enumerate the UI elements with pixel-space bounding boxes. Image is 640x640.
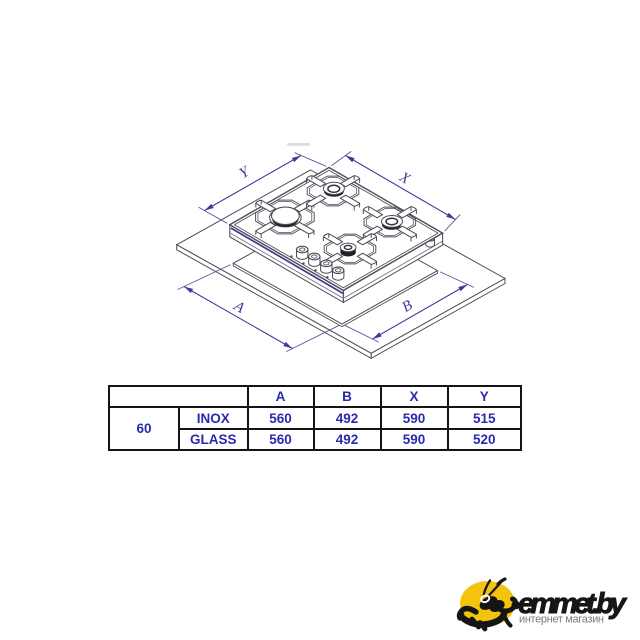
- svg-text:X: X: [396, 169, 414, 188]
- svg-text:интернет магазин: интернет магазин: [519, 614, 604, 626]
- svg-text:Y: Y: [237, 163, 254, 182]
